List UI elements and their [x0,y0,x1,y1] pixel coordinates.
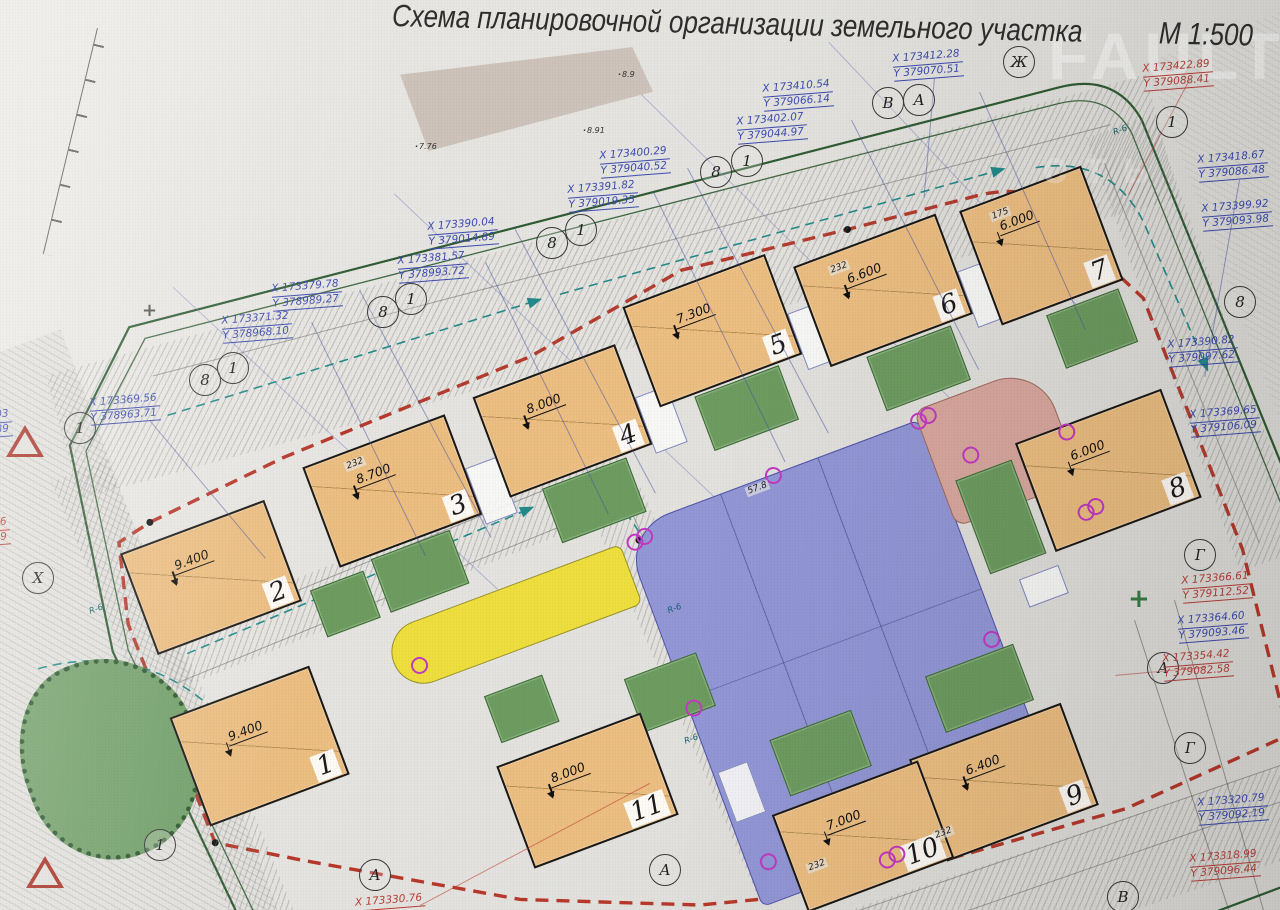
axis-marker: А [649,854,681,886]
coordinate-label: X 173364.60Y 379093.46 [1177,609,1249,644]
axis-marker: 8 [1224,286,1256,318]
coordinate-label: X 173400.29Y 379040.52 [599,144,671,179]
coordinate-label: X 173402.07Y 379044.97 [736,110,808,145]
building-number: 1 [310,748,343,782]
building-number: 3 [442,489,475,523]
coordinate-label: X 173418.67Y 379086.48 [1197,148,1269,183]
coordinate-label: X 173399.92Y 379093.98 [1201,197,1273,232]
axis-marker: 8 [536,227,568,259]
axis-marker: 1 [144,829,176,861]
axis-marker: 1 [395,283,427,315]
plan-rotated-layer: 9.400 1 9.400 2 8.700 3 8.000 4 7.300 5 … [0,0,1280,910]
coordinate-label: X 173320.79Y 379092.19 [1197,791,1269,826]
coordinate-label: X 173422.89Y 379088.41 [1142,57,1214,92]
axis-marker: Х [22,562,54,594]
axis-marker: Ж [1003,46,1035,78]
elevation-mark: 8.000 [546,758,590,787]
elevation-mark: 7.300 [671,299,715,328]
grid-cross-icon: + [142,300,157,321]
coordinate-label: X 173381.57Y 378993.72 [397,249,469,284]
coordinate-label: X 173366.61Y 379112.52 [1181,569,1253,604]
elevation-mark: 6.400 [960,750,1004,779]
axis-marker: Г [1174,732,1206,764]
building-number: 6 [933,288,966,322]
elevation-mark: 9.400 [169,545,213,574]
coordinate-label: X 173379.78Y 378989.27 [271,277,343,312]
coordinate-label: X 173391.82Y 379019.35 [567,178,639,213]
scale-label: М 1:500 [1159,15,1254,53]
elevation-mark: 7.000 [821,805,865,834]
coordinate-label: X 173354.42Y 379082.58 [1162,647,1234,682]
coordinate-label: X 173369.56Y 378963.71 [89,391,161,426]
axis-marker: 1 [217,352,249,384]
coordinate-label: X 173369.65Y 379106.09 [1189,403,1261,438]
elevation-mark: 9.400 [223,716,267,745]
axis-marker: А [903,84,935,116]
coordinate-label: X 173390.82Y 379097.62 [1167,333,1239,368]
axis-marker: А [359,859,391,891]
coordinate-label: X 173318.99Y 379096.44 [1189,847,1261,882]
axis-marker: 1 [565,214,597,246]
axis-marker: 1 [731,145,763,177]
site-plan-photo: 9.400 1 9.400 2 8.700 3 8.000 4 7.300 5 … [0,0,1280,910]
elevation-mark: 6.000 [1065,436,1109,465]
coordinate-label: X 173371.32Y 378968.10 [221,309,293,344]
building-number: 9 [1059,779,1092,813]
coordinate-label: X 173410.54Y 379066.14 [762,77,834,112]
grid-cross-icon: + [1128,584,1150,614]
axis-marker: 1 [1156,106,1188,138]
axis-marker: 8 [700,156,732,188]
spot-height: 8.91 [583,126,605,135]
spot-height: 7.76 [415,142,437,151]
building-number: 7 [1083,254,1116,288]
building-number: 2 [262,575,295,609]
watermark-text: сть [1042,140,1166,194]
coordinate-label: X 173390.04Y 379014.89 [427,215,499,250]
warning-triangle-sign [26,856,64,888]
spot-height: 8.9 [618,70,635,79]
building-number: 8 [1162,471,1195,505]
axis-marker: В [872,87,904,119]
axis-marker: Г [1184,539,1216,571]
coordinate-label: X 173412.28Y 379070.51 [892,47,964,82]
building-number: 5 [762,328,795,362]
axis-marker: В [1107,881,1139,910]
